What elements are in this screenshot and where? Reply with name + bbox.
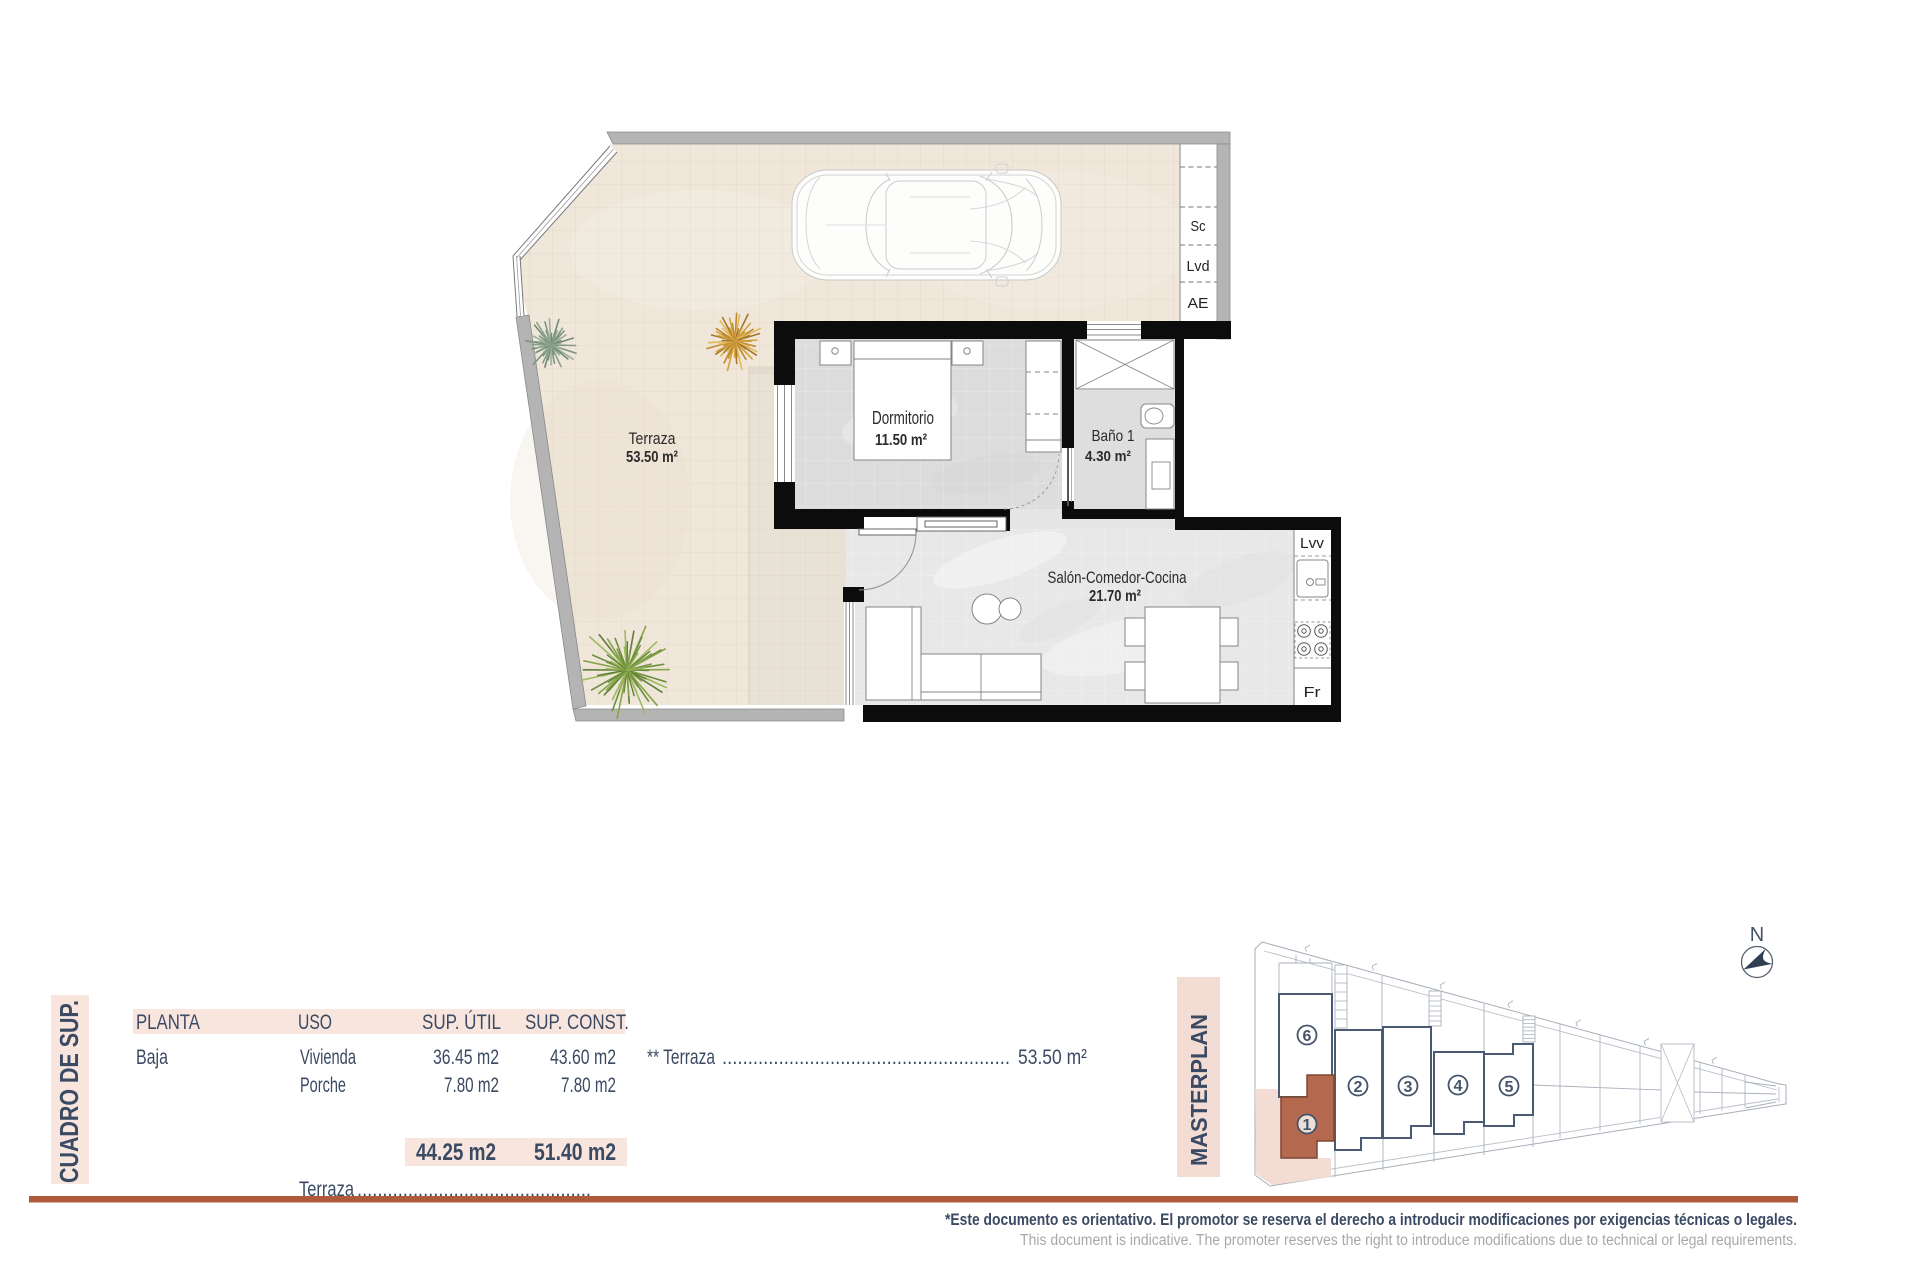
svg-text:N: N [1750,924,1764,946]
svg-text:SUP. CONST.: SUP. CONST. [525,1010,629,1034]
svg-text:4.30 m²: 4.30 m² [1085,448,1131,465]
svg-text:44.25 m2: 44.25 m2 [416,1139,496,1166]
svg-text:** Terraza: ** Terraza [647,1046,715,1069]
svg-text:PLANTA: PLANTA [136,1010,201,1034]
svg-text:AE: AE [1188,295,1209,312]
svg-text:5: 5 [1505,1079,1514,1096]
svg-text:51.40 m2: 51.40 m2 [534,1139,616,1166]
svg-text:This document is indicative. T: This document is indicative. The promote… [1020,1232,1797,1249]
svg-text:7.80 m2: 7.80 m2 [561,1074,616,1097]
svg-text:3: 3 [1404,1079,1413,1096]
svg-text:53.50 m²: 53.50 m² [626,449,678,466]
svg-text:USO: USO [298,1010,332,1034]
svg-text:Porche: Porche [300,1074,346,1097]
svg-text:36.45 m2: 36.45 m2 [433,1046,499,1069]
svg-text:53.50 m²: 53.50 m² [1018,1046,1087,1069]
svg-text:2: 2 [1354,1079,1363,1096]
svg-text:Sc: Sc [1191,218,1206,235]
svg-text:Lvv: Lvv [1300,535,1325,552]
svg-text:4: 4 [1454,1078,1463,1095]
svg-text:Baja: Baja [136,1046,168,1069]
svg-text:7.80 m2: 7.80 m2 [444,1074,499,1097]
svg-text:6: 6 [1303,1028,1312,1045]
svg-text:Vivienda: Vivienda [300,1046,356,1069]
svg-text:Salón-Comedor-Cocina: Salón-Comedor-Cocina [1048,568,1187,587]
svg-text:21.70 m²: 21.70 m² [1089,588,1141,605]
svg-text:11.50 m²: 11.50 m² [875,432,927,449]
svg-text:43.60 m2: 43.60 m2 [550,1046,616,1069]
svg-text:..............................: ........................................… [722,1046,1010,1069]
svg-text:Lvd: Lvd [1187,258,1210,275]
svg-text:Terraza: Terraza [629,429,676,448]
svg-text:*Este documento es orientativo: *Este documento es orientativo. El promo… [945,1211,1797,1229]
svg-text:MASTERPLAN: MASTERPLAN [1186,1014,1212,1166]
svg-text:Dormitorio: Dormitorio [872,408,934,428]
svg-text:SUP. ÚTIL: SUP. ÚTIL [422,1009,501,1034]
svg-text:1: 1 [1303,1117,1312,1134]
svg-text:Baño 1: Baño 1 [1092,428,1135,445]
svg-text:CUADRO DE SUP.: CUADRO DE SUP. [54,1000,84,1183]
svg-text:Fr: Fr [1304,684,1321,701]
